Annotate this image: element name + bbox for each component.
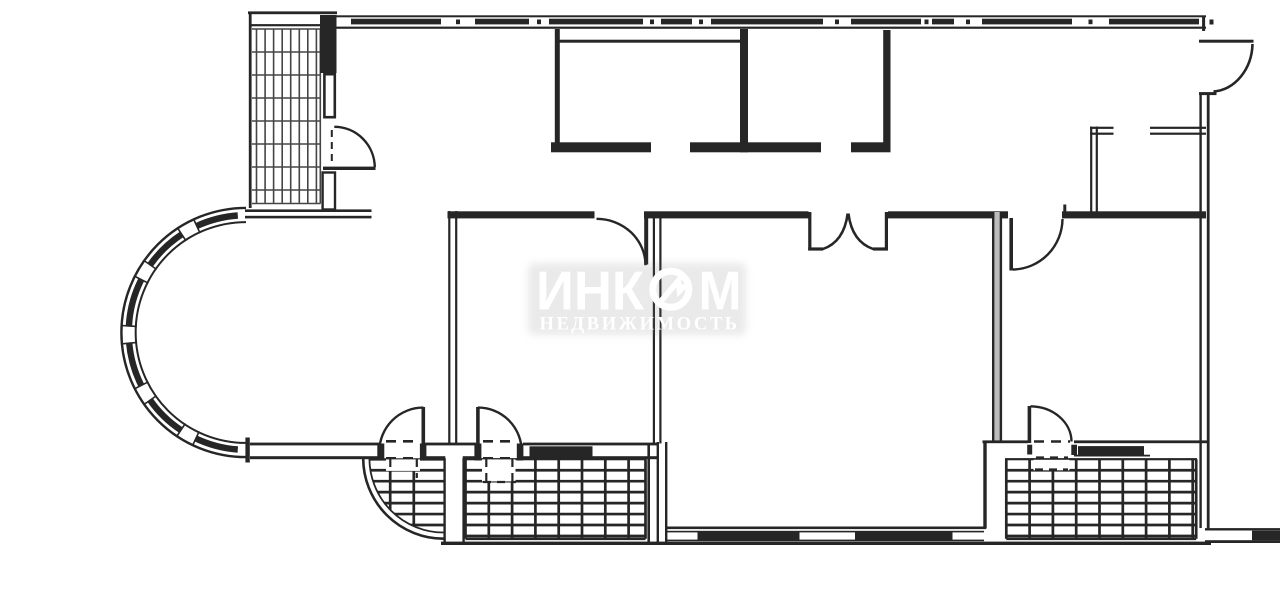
svg-text:М: М bbox=[699, 260, 742, 321]
svg-text:ИНК: ИНК bbox=[536, 260, 645, 321]
